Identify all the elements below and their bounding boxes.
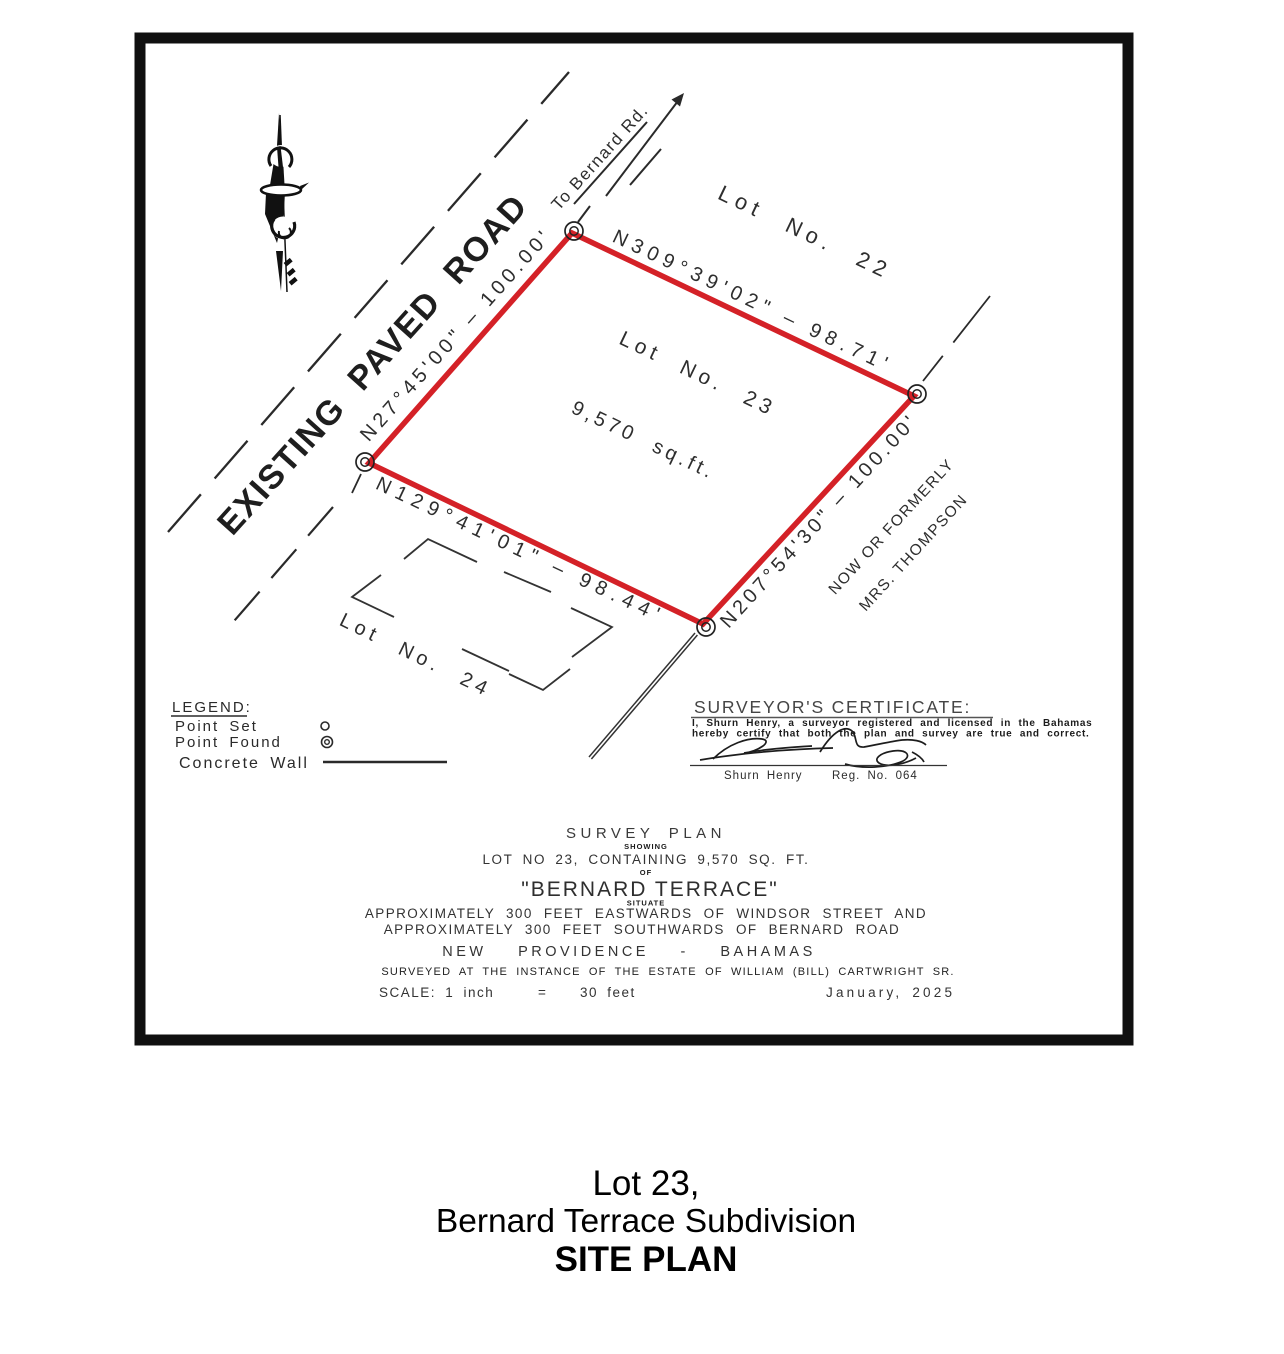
svg-text:SITE PLAN: SITE PLAN (555, 1240, 738, 1279)
svg-text:Point Set: Point Set (175, 718, 258, 735)
svg-text:Shurn Henry: Shurn Henry (724, 770, 803, 782)
svg-text:30 feet: 30 feet (580, 985, 636, 1000)
svg-text:SURVEY PLAN: SURVEY PLAN (566, 825, 726, 842)
svg-text:NEW PROVIDENCE - BAHAMAS: NEW PROVIDENCE - BAHAMAS (442, 944, 816, 960)
svg-text:SURVEYED AT THE INSTANCE OF TH: SURVEYED AT THE INSTANCE OF THE ESTATE O… (381, 966, 954, 978)
svg-text:January, 2025: January, 2025 (826, 985, 955, 1000)
svg-text:Lot 23,: Lot 23, (592, 1164, 699, 1203)
svg-text:I, Shurn Henry, a surveyor reg: I, Shurn Henry, a surveyor registered an… (692, 718, 1092, 729)
svg-text:Bernard Terrace Subdivision: Bernard Terrace Subdivision (436, 1203, 856, 1240)
svg-text:SHOWING: SHOWING (624, 842, 668, 851)
svg-text:APPROXIMATELY 300 FEET SOUTHWA: APPROXIMATELY 300 FEET SOUTHWARDS OF BER… (384, 922, 900, 937)
svg-text:OF: OF (640, 868, 652, 877)
svg-text:hereby certify that both the p: hereby certify that both the plan and su… (692, 729, 1090, 740)
svg-text:SCALE: 1 inch: SCALE: 1 inch (379, 985, 494, 1000)
svg-text:Point Found: Point Found (175, 734, 282, 751)
svg-text:Concrete Wall: Concrete Wall (179, 755, 309, 772)
svg-text:LEGEND:: LEGEND: (172, 699, 252, 716)
svg-text:APPROXIMATELY 300 FEET EASTWAR: APPROXIMATELY 300 FEET EASTWARDS OF WIND… (365, 906, 927, 921)
svg-text:SURVEYOR'S CERTIFICATE:: SURVEYOR'S CERTIFICATE: (694, 697, 971, 717)
svg-text:=: = (538, 985, 546, 1000)
svg-text:Reg. No. 064: Reg. No. 064 (832, 770, 918, 782)
svg-text:LOT NO 23, CONTAINING 9,570 SQ: LOT NO 23, CONTAINING 9,570 SQ. FT. (482, 852, 809, 867)
